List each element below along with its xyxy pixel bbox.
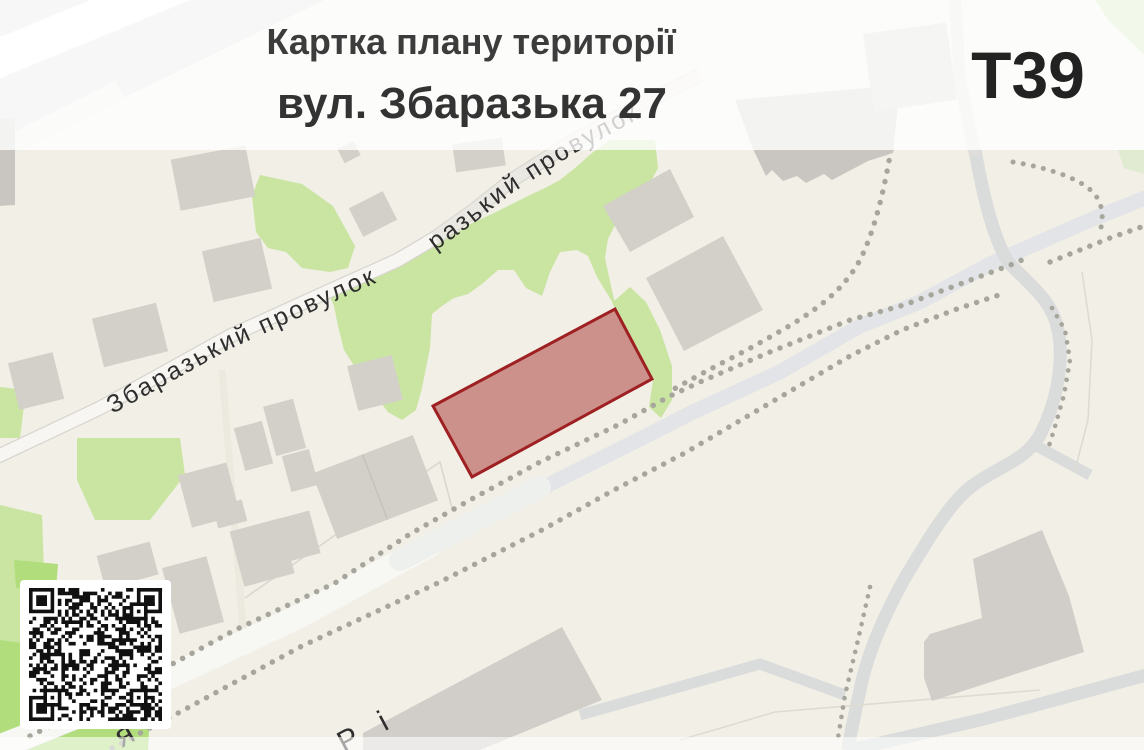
svg-text:Т39: Т39	[971, 38, 1085, 112]
svg-text:вул. Збаразька 27: вул. Збаразька 27	[277, 79, 667, 128]
svg-text:Картка плану території: Картка плану території	[266, 21, 676, 62]
